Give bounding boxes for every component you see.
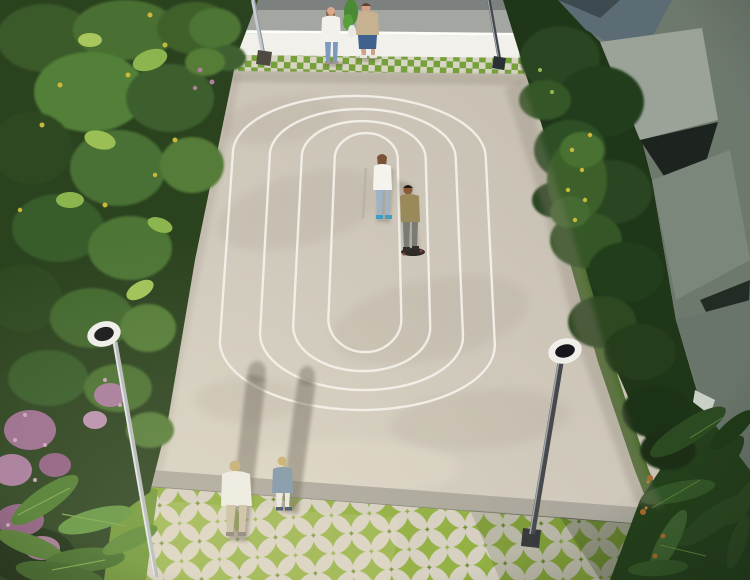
vignette-overlay xyxy=(0,0,750,580)
courtyard-rendering: Aerial 3D architectural rendering of a r… xyxy=(0,0,750,580)
scene-root: Aerial 3D architectural rendering of a r… xyxy=(0,0,750,580)
